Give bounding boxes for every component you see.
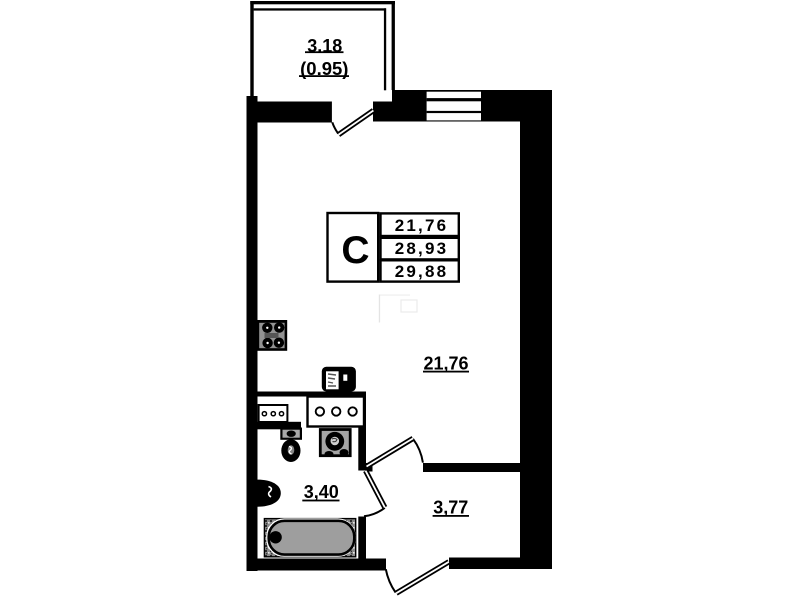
svg-text:3,40: 3,40: [304, 482, 339, 502]
svg-text:29,88: 29,88: [395, 262, 449, 281]
svg-text:21,76: 21,76: [423, 353, 468, 373]
svg-text:21,76: 21,76: [395, 216, 449, 235]
svg-text:28,93: 28,93: [395, 239, 449, 258]
svg-text:С: С: [341, 229, 369, 272]
svg-text:3,77: 3,77: [433, 498, 468, 518]
